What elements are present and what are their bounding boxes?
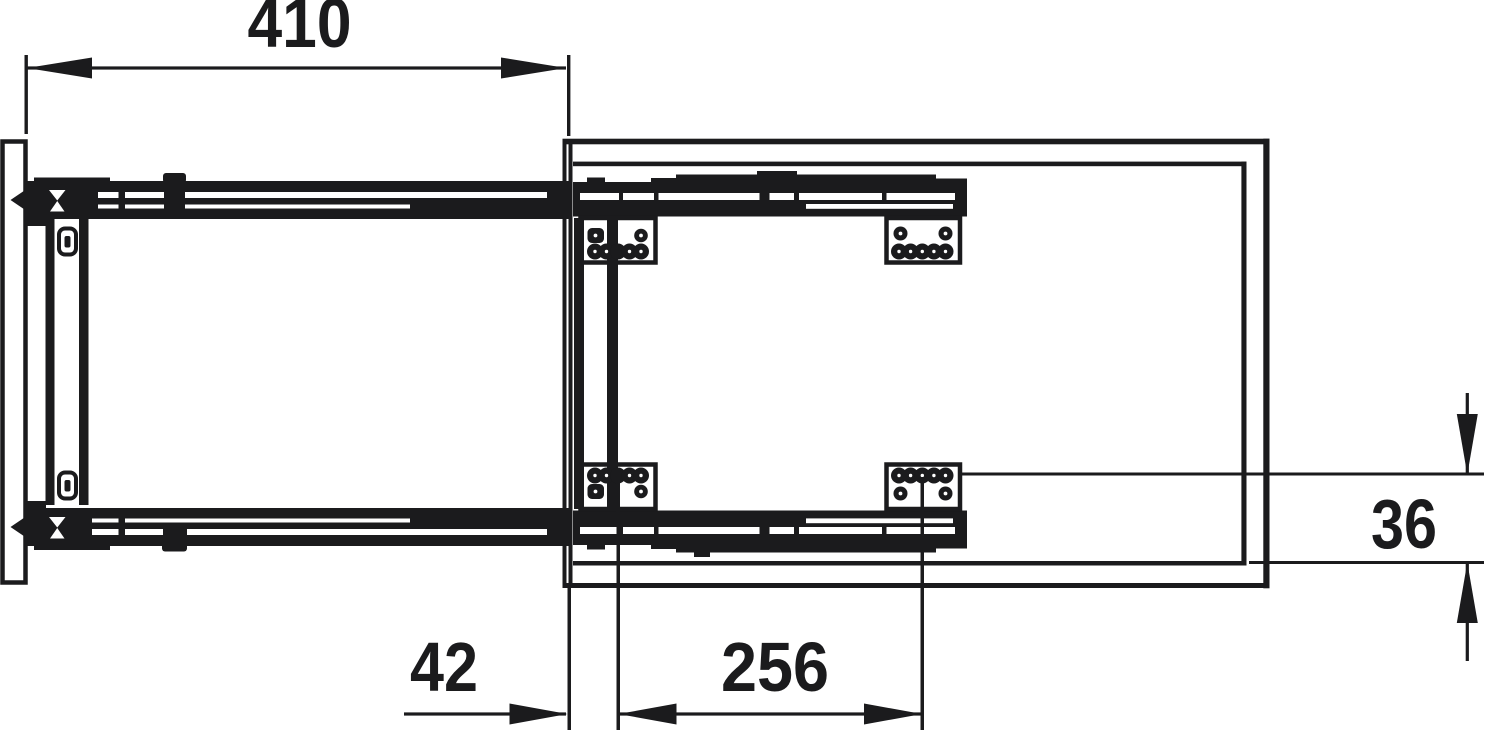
svg-text:42: 42 — [410, 628, 478, 706]
svg-text:36: 36 — [1371, 485, 1437, 563]
svg-text:256: 256 — [721, 628, 829, 706]
svg-text:410: 410 — [248, 0, 352, 62]
